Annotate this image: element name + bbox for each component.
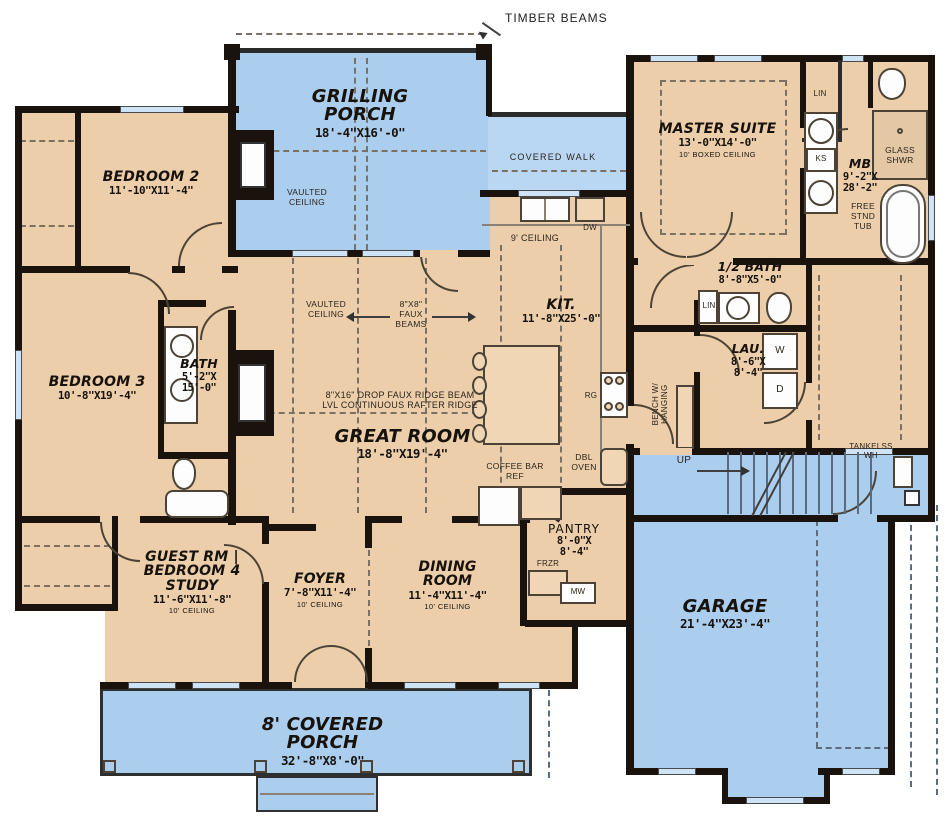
range-label: RG [582,392,600,401]
ridge-beam-label: 8"X16" DROP FAUX RIDGE BEAM LVL CONTINUO… [300,390,500,411]
wall-garage-top-b [877,515,935,522]
ms-tray-dash-3 [660,80,785,82]
wall-master-west [626,55,634,261]
kitchen-counter-east [600,224,602,464]
room-label-garage: GARAGE 21'-4"X23'-4" [655,598,795,630]
wall-right-exterior [928,55,935,520]
porch-step-line [260,793,374,795]
free-tub-label: FREE STND TUB [846,202,880,231]
walk-dash [492,170,626,172]
timber-leader-arrow [476,28,487,39]
window-master-1 [650,55,698,62]
vaulted-ceiling-porch-label: VAULTED CEILING [278,188,336,208]
window-guest-1 [128,682,176,689]
room-label-dining-room: DINING ROOM 11'-4"X11'-4" 10' CEILING [400,560,495,611]
timber-beam-dash [236,33,484,35]
closet-rod-1 [818,275,820,440]
wall-bed-divide-a [15,266,130,273]
room-label-covered-porch: 8' COVERED PORCH 32'-8"X8'-0" [235,716,410,767]
wall-spine-b [626,444,634,775]
wall-guest-top-a [15,516,100,523]
garage-bay-dash-h [816,747,890,749]
wall-bed-divide-c [222,266,238,273]
wall-guest-closet-bottom [15,604,118,611]
room-label-bedroom-3: BEDROOM 3 10'-8"X19'-4" [38,375,156,402]
mud-bench [676,385,694,449]
dishwasher-label: DW [576,224,604,233]
window-garage-2 [842,768,880,775]
wall-bump-right [824,768,830,804]
gr-ridge-dash [238,412,478,414]
wall-grilling-porch-top [228,48,492,53]
wall-bed-divide-b [172,266,185,273]
covered-walk-label: COVERED WALK [498,152,608,162]
window-bed3-left [15,350,22,420]
stairs-up-label: UP [672,455,696,467]
glass-shower-label: GLASS SHWR [878,146,922,166]
wall-closet-west-a [806,263,812,383]
kitchen-sink-divide [544,199,546,220]
wall-dining-top-a [368,516,402,523]
room-label-foyer: FOYER 7'-8"X11'-4" 10' CEILING [278,572,362,609]
gap-bench-niche [640,448,692,455]
closet-rod-2 [900,275,902,440]
garage-bump-floor [722,770,824,800]
porch-firebox [240,142,266,188]
up-arrow-line [697,470,741,472]
burner-2 [615,376,624,385]
window-dining-2 [498,682,540,689]
room-label-bath: BATH 5'-2"X 15'-0" [170,358,228,394]
window-mb-right [928,195,935,241]
greatroom-firebox [238,364,266,422]
porch-column-1 [103,760,116,773]
coffee-bar-label: COFFEE BAR REF [480,462,550,482]
halfbath-toilet [766,292,792,324]
ms-tray-dash-2 [785,80,787,235]
wall-closet-west-b [806,420,812,452]
floor-plan: LIN GRILLING PORCH 18'-4"X16'-0" MASTER … [0,0,950,831]
mb-tub-inner [886,190,920,258]
burner-1 [604,376,613,385]
window-greatroom-1 [292,250,348,257]
stair-treads [716,452,872,514]
gr-beam-dash-3 [425,258,427,513]
window-master-2 [714,55,762,62]
wall-bath-bottom [158,452,236,459]
wall-foyer-dining-b [365,648,372,688]
wall-guest-foyer-a [262,516,269,544]
dryer-label: D [770,384,790,395]
window-dining-1 [404,682,456,689]
room-label-half-bath: 1/2 BATH 8'-8"X5'-0" [700,261,800,286]
mb-sink-2 [808,180,834,206]
bath-sink-1 [170,334,194,358]
wall-halfbath-bottom [632,325,812,332]
wall-garage-top-a [626,515,838,522]
garage-bay-dash-v [816,520,818,748]
garage-floor [630,515,892,773]
washer-label: W [770,345,790,356]
room-label-guest-room: GUEST RM | BEDROOM 4 STUDY 11'-6"X11'-8"… [128,550,256,615]
ceiling-9-label: 9' CEILING [495,233,575,243]
wall-porch-right [486,48,492,116]
wall-bed2-closet [75,112,81,268]
mb-sink-1 [808,118,834,144]
gap-porch-door [420,250,458,257]
faux-arrow-right-head [468,312,476,322]
wall-pantry-bottom [525,620,633,627]
wall-covered-walk-top [488,112,634,117]
halfbath-sink [726,296,750,320]
mb-toilet [878,68,906,100]
porch-roof-dash [548,690,550,778]
window-garage-bump [746,797,804,804]
mb-shower-drain [897,128,903,134]
timber-beams-label: TIMBER BEAMS [505,11,608,25]
burner-3 [604,402,613,411]
window-garage-1 [658,768,696,775]
wall-front-b [368,682,578,689]
driveway-dash-2 [936,505,938,795]
wall-pantry-top [556,488,634,495]
lin-master-label: LIN [804,90,836,99]
wall-dining-pantry [520,516,527,626]
coffee-bar-counter [478,486,520,526]
wall-front-right-corner [572,624,578,688]
faux-arrow-right-line [432,316,470,318]
room-label-great-room: GREAT ROOM 18'-8"X19'-4" [320,428,485,460]
microwave-label: MW [562,588,594,597]
guest-closet-rod-2 [24,585,110,587]
window-bed2-top [120,106,184,113]
bed2-closet-rod-1 [20,140,74,142]
bench-label: BENCH W/ HANGING [651,372,669,436]
drive-post [904,490,920,506]
bed2-closet-rod-2 [20,225,74,227]
faux-beams-label: 8"X8" FAUX BEAMS [390,300,432,329]
refrigerator-box [520,486,562,520]
gr-beam-dash-2 [357,258,359,513]
window-greatroom-2 [362,250,414,257]
up-arrow-head [741,466,750,476]
wall-guest-foyer-b [262,582,269,688]
wall-foyer-top-stub [262,524,316,531]
wall-garage-right [888,515,895,775]
burner-4 [615,402,624,411]
room-label-grilling-porch: GRILLING PORCH 18'-4"X16'-0" [275,88,445,139]
window-guest-2 [192,682,240,689]
freezer-label: FRZR [528,560,568,569]
faux-arrow-left-line [352,316,390,318]
kit-beam-dash-2 [560,245,562,513]
tankless-wh-label: TANKELSS WH [848,442,894,460]
tankless-wh-box [893,456,913,488]
lin-half-bath-label: LIN [697,302,721,311]
dbl-oven-label: DBL OVEN [568,453,600,473]
room-label-master-suite: MASTER SUITE 13'-0"X14'-0" 10' BOXED CEI… [655,122,780,159]
driveway-dash-1 [910,515,912,787]
faux-arrow-left-head [346,312,354,322]
kitchen-counter-top [482,224,630,226]
room-label-pantry: PANTRY 8'-0"X 8'-4" [538,523,610,558]
dishwasher-box [575,197,605,222]
wall-halfbath-west-b [694,372,700,452]
room-label-bedroom-2: BEDROOM 2 11'-10"X11'-4" [95,170,207,197]
guest-closet-rod-1 [24,545,110,547]
room-label-kitchen: KIT. 11'-8"X25'-0" [505,298,617,325]
wall-mb-wc-divide [868,60,873,108]
porch-column-4 [512,760,525,773]
island-stool-1 [472,352,487,371]
double-oven-box [600,448,628,486]
bath-toilet [172,458,196,490]
wall-foyer-dining-a [365,516,372,548]
bath-tub [165,490,229,518]
knee-space-label: KS [806,155,836,164]
window-mb-top [842,55,864,62]
gr-beam-dash-1 [292,258,294,513]
window-kitchen [518,190,580,197]
cased-opening-dashes [368,550,370,646]
